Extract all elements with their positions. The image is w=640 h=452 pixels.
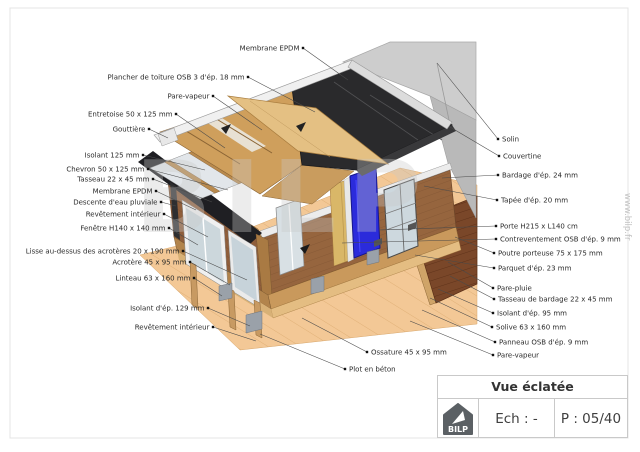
annotation-label: Linteau 63 x 160 mm (115, 275, 190, 283)
logo-wordmark: BILP (448, 425, 468, 434)
leader-dot (492, 354, 494, 356)
annotation-label: Tapée d'ép. 20 mm (500, 197, 568, 205)
leader-dot (182, 250, 184, 252)
leader-dot (152, 178, 154, 180)
annotation-label: Chevron 50 x 125 mm (66, 166, 144, 174)
annotation-label: Solin (502, 136, 519, 144)
leader-dot (492, 312, 494, 314)
leader-dot (189, 261, 191, 263)
annotation-label: Revêtement intérieur (86, 211, 161, 219)
leader-dot (163, 213, 165, 215)
scale-value: Ech : - (479, 399, 555, 438)
annotation-label: Membrane EPDM (240, 45, 300, 53)
annotation-label: Lisse au-dessus des acrotères 20 x 190 m… (26, 248, 180, 256)
annotation-label: Couvertine (503, 153, 541, 161)
leader-dot (207, 307, 209, 309)
annotation-label: Contreventement OSB d'ép. 9 mm (500, 236, 621, 244)
annotation-label: Descente d'eau pluviale (73, 199, 157, 207)
leader-dot (497, 174, 499, 176)
leader-dot (148, 128, 150, 130)
annotation-label: Tasseau 22 x 45 mm (76, 176, 149, 184)
annotation-label: Isolant 125 mm (85, 152, 140, 160)
website-url-vertical: www.bilp.fr (622, 193, 632, 241)
leader-dot (160, 201, 162, 203)
annotation-label: Pare-pluie (497, 285, 532, 293)
bilp-logo: BILP (438, 399, 479, 438)
annotation-label: Parquet d'ép. 23 mm (498, 265, 572, 273)
leader-dot (496, 199, 498, 201)
leader-dot (494, 341, 496, 343)
leader-dot (497, 138, 499, 140)
title-block: Vue éclatée BILP Ech : - P : 05/40 (437, 375, 628, 438)
annotation-label: Pare-vapeur (167, 93, 209, 101)
leader-dot (212, 326, 214, 328)
leader-dot (495, 238, 497, 240)
leader-dot (492, 287, 494, 289)
leader-dot (493, 267, 495, 269)
leader-dot (193, 277, 195, 279)
leader-dot (147, 168, 149, 170)
annotation-label: Fenêtre H140 x 140 mm (80, 225, 165, 233)
leader-dot (302, 47, 304, 49)
leader-dot (212, 95, 214, 97)
annotation-label: Plot en béton (349, 366, 396, 374)
leader-dot (493, 252, 495, 254)
annotation-label: Plancher de toiture OSB 3 d'ép. 18 mm (108, 74, 245, 82)
annotation-label: Pare-vapeur (497, 352, 539, 360)
page-number: P : 05/40 (555, 399, 627, 438)
annotation-label: Membrane EPDM (93, 188, 153, 196)
leader-dot (493, 298, 495, 300)
annotation-label: Gouttière (113, 126, 146, 134)
leader-dot (344, 368, 346, 370)
annotation-label: Poutre porteuse 75 x 175 mm (498, 250, 603, 258)
annotation-label: Revêtement intérieur (135, 324, 210, 332)
leader-dot (175, 113, 177, 115)
leader-dot (168, 227, 170, 229)
concrete-plot (246, 311, 262, 333)
concrete-plot (219, 283, 232, 301)
annotation-label: Isolant d'ép. 129 mm (130, 305, 205, 313)
concrete-plot (311, 276, 324, 294)
annotation-label: Ossature 45 x 95 mm (371, 349, 447, 357)
leader-dot (366, 351, 368, 353)
drawing-title: Vue éclatée (438, 376, 627, 399)
leader-dot (498, 155, 500, 157)
annotation-label: Porte H215 x L140 cm (500, 223, 578, 231)
leader-dot (495, 225, 497, 227)
annotation-label: Tasseau de bardage 22 x 45 mm (497, 296, 613, 304)
bilp-logo-icon: BILP (443, 403, 473, 435)
leader-dot (155, 190, 157, 192)
watermark-text: BILP (135, 139, 433, 256)
annotation-label: Bardage d'ép. 24 mm (502, 172, 578, 180)
leader-dot (247, 76, 249, 78)
annotation-label: Isolant d'ép. 95 mm (497, 310, 567, 318)
annotation-label: Solive 63 x 160 mm (496, 324, 566, 332)
annotation-label: Panneau OSB d'ép. 9 mm (499, 339, 588, 347)
drawing-sheet: BILP www.bilp.fr Membrane EPDMPlancher d… (0, 0, 640, 452)
annotation-label: Acrotère 45 x 95 mm (112, 259, 186, 267)
leader-dot (491, 326, 493, 328)
leader-dot (142, 154, 144, 156)
annotation-label: Entretoise 50 x 125 mm (88, 111, 173, 119)
